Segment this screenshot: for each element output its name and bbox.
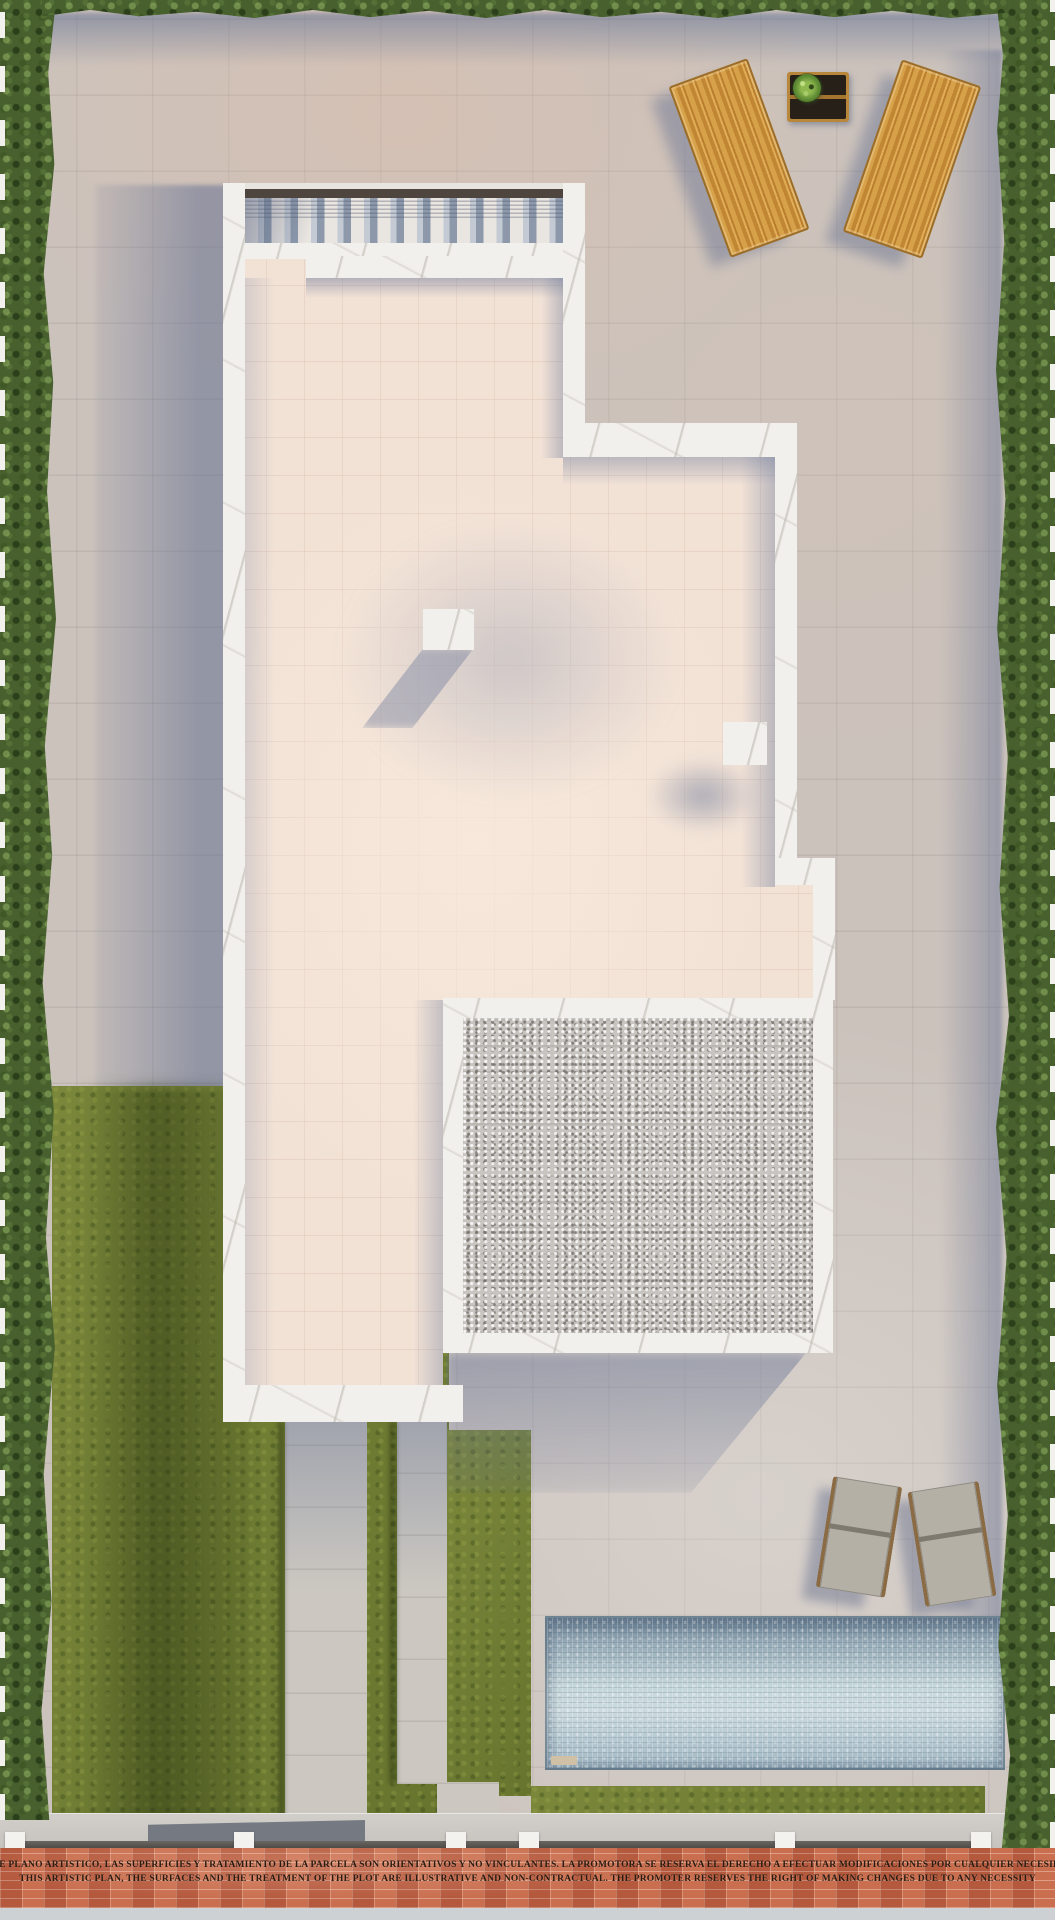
deck-shadow (541, 278, 563, 458)
deck-soft-shadow (340, 520, 680, 800)
building-wall-right-lower (813, 885, 835, 1000)
walkway-right (397, 1422, 447, 1784)
building-shadow-left-passage (96, 185, 228, 1095)
deck-shadow (306, 278, 563, 298)
walkway-edge-shadow (389, 1422, 397, 1784)
walkway-top-shadow (397, 1422, 447, 1592)
stairs-top-edge (245, 189, 563, 198)
disclaimer-line-english: THIS ARTISTIC PLAN, THE SURFACES AND THE… (19, 1874, 1036, 1884)
stairs-shadow (245, 198, 325, 243)
lounger-fold-bar (829, 1523, 891, 1538)
pool-mosaic-tiles (547, 1618, 1003, 1768)
terrace-parapet (306, 256, 563, 278)
deck-shadow (563, 457, 797, 485)
fence-right (1050, 0, 1055, 1848)
wall-block-shadow (648, 758, 758, 833)
plant-foliage (796, 77, 818, 99)
walkway-edge-shadow (277, 1422, 285, 1818)
building-wall-left (223, 183, 245, 1422)
roof-stairs (245, 183, 563, 243)
gravel-roof-surface (463, 1018, 813, 1333)
building-wall-step (775, 858, 835, 885)
chimney-block (423, 609, 474, 650)
pool-entry-step (551, 1756, 577, 1765)
swimming-pool (545, 1616, 1005, 1770)
building-wall-step-top (563, 423, 797, 457)
walkway-left (285, 1422, 367, 1818)
building-wall-right-mid (775, 423, 797, 863)
building-wall-top-right (563, 183, 585, 457)
disclaimer-line-spanish: ESTE PLANO ARTISTICO, LAS SUPERFICIES Y … (0, 1860, 1055, 1870)
deck-shadow (413, 1000, 443, 1385)
street-curb-strip (0, 1908, 1055, 1920)
hedge-right (996, 0, 1055, 1848)
site-plan-canvas: ESTE PLANO ARTISTICO, LAS SUPERFICIES Y … (0, 0, 1055, 1920)
building-wall-bottom (223, 1385, 463, 1422)
top-hedge-shadow (40, 13, 1015, 65)
deck-shadow (245, 278, 275, 1385)
wall-block (723, 722, 767, 765)
walkway-top-shadow (285, 1422, 367, 1592)
right-hedge-shadow (940, 50, 1002, 1620)
fence-left (0, 0, 5, 1820)
lounger-fold-bar (919, 1528, 983, 1543)
